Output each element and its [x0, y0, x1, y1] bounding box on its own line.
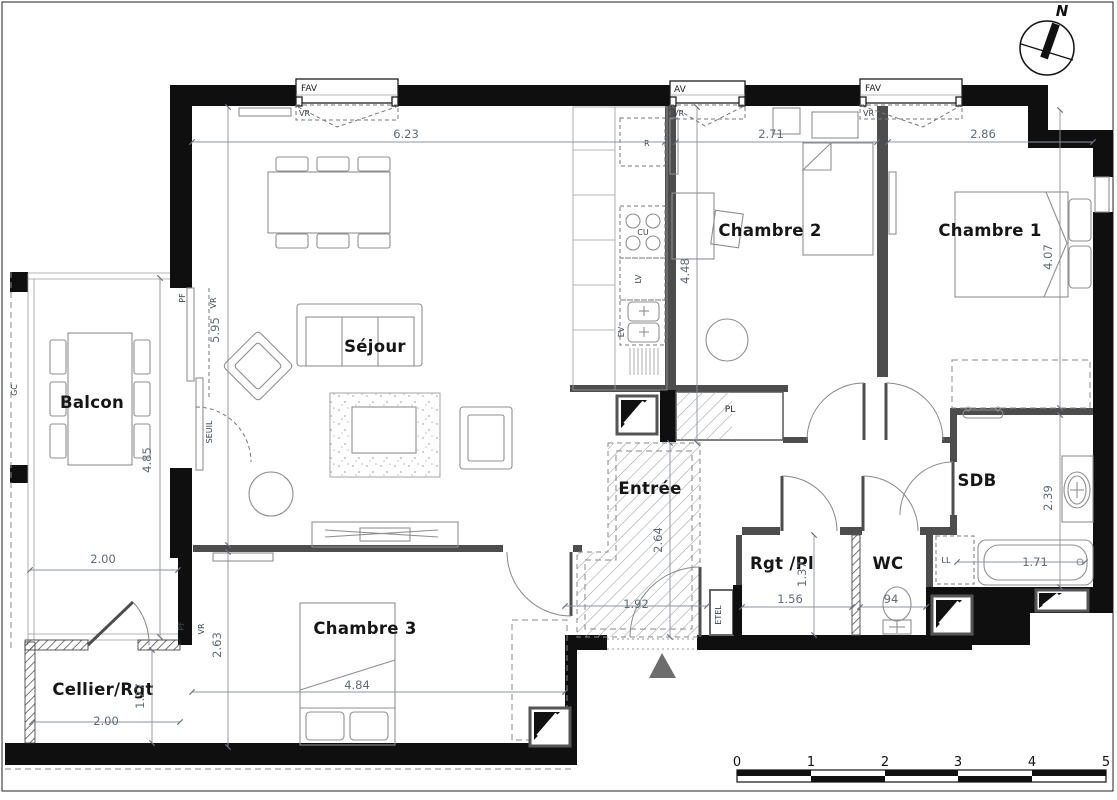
seuil-label: SEUIL: [205, 420, 214, 443]
dim-ch3-w: 4.84: [344, 678, 370, 692]
dim-wc-w: 94: [884, 592, 899, 606]
tv-unit: [312, 522, 458, 547]
armchair: [460, 407, 512, 469]
svg-text:VR: VR: [863, 109, 874, 118]
dim-sejour-w: 6.23: [393, 127, 419, 141]
pillow: [350, 712, 388, 740]
dim-entrance-w: 1.92: [623, 597, 649, 611]
svg-text:LL: LL: [942, 556, 951, 565]
chambre3: Chambre 3: [300, 603, 570, 746]
sejour: Séjour: [213, 157, 512, 561]
svg-text:LV: LV: [634, 274, 643, 284]
shelf: [812, 112, 858, 138]
scale-0: 0: [733, 755, 741, 770]
dim-rgtpl-w: 1.56: [777, 592, 803, 606]
svg-text:CU: CU: [637, 228, 649, 237]
dim-sdb-h: 2.39: [1041, 485, 1055, 511]
svg-text:PF: PF: [178, 293, 187, 303]
svg-text:VR: VR: [209, 297, 218, 308]
wardrobe-dashed: [952, 360, 1090, 408]
gc-label: GC: [10, 384, 19, 396]
balcony-sliding-door: PF VR SEUIL: [178, 288, 251, 470]
dishwasher: LV: [620, 258, 665, 300]
door-chambre2: [807, 383, 864, 440]
svg-text:AV: AV: [674, 85, 687, 95]
room-label-entree: Entrée: [618, 479, 681, 498]
radiator: [889, 172, 896, 234]
svg-text:PF: PF: [177, 621, 186, 631]
closet-pl: PL: [676, 392, 783, 440]
room-label-chambre2: Chambre 2: [718, 221, 821, 240]
coffee-table: [352, 407, 416, 453]
chambre1: Chambre 1: [889, 172, 1091, 408]
dim-ch1-w: 2.86: [970, 127, 996, 141]
duct-shaft-wide: [1036, 590, 1088, 611]
washing-machine: LL: [936, 536, 974, 584]
kitchen: R CU LV EV: [573, 107, 667, 390]
scale-4: 4: [1028, 755, 1036, 770]
desk: [672, 193, 714, 259]
vanity-sink: [1062, 456, 1093, 522]
etel-panel: ETEL: [710, 585, 742, 635]
door-sdb: [900, 462, 953, 515]
bed-double: [955, 192, 1091, 297]
chambre2: Chambre 2: [670, 108, 873, 361]
door-chambre1: [886, 383, 943, 440]
dim-ch3-h: 2.63: [210, 632, 224, 658]
door-chambre3: [507, 552, 571, 616]
dim-balcon-h: 4.85: [140, 447, 154, 473]
window-av: AV VR: [670, 81, 745, 126]
dim-sejour-h: 5.95: [208, 317, 222, 343]
north-label: N: [1056, 2, 1069, 20]
room-label-sdb: SDB: [957, 471, 996, 490]
round-rug: [706, 319, 748, 361]
dim-rgtpl-h: 1.37: [795, 561, 809, 587]
sheet-border: [2, 2, 1113, 791]
svg-text:ETEL: ETEL: [714, 605, 723, 625]
dim-tub-w: 1.71: [1022, 555, 1048, 569]
door-rgtpl: [782, 476, 837, 531]
svg-text:VR: VR: [197, 623, 206, 634]
room-label-balcon: Balcon: [60, 393, 124, 412]
kitchen-sink: EV: [617, 300, 665, 375]
dim-cellier-h: 1.27: [133, 683, 147, 709]
dining-table: [268, 172, 390, 233]
room-label-wc: WC: [873, 554, 904, 573]
radiator: [213, 553, 273, 561]
dim-cellier-w: 2.00: [93, 714, 119, 728]
sofa: [297, 304, 422, 366]
window-fav-2: FAV VR: [860, 79, 962, 127]
drainer: [630, 348, 658, 375]
scale-1: 1: [807, 755, 815, 770]
pl-label: PL: [725, 405, 735, 415]
floor-plan-drawing: Balcon GC FAV VR AV VR FAV: [0, 0, 1117, 800]
room-label-chambre3: Chambre 3: [313, 619, 416, 638]
entrance-arrow: [649, 653, 676, 678]
exterior-walls: [5, 85, 1113, 769]
scale-3: 3: [954, 755, 962, 770]
duct-shaft: [932, 596, 972, 634]
north-needle: [1044, 24, 1056, 58]
floor-plan-sheet: Balcon GC FAV VR AV VR FAV: [0, 0, 1117, 800]
room-label-chambre1: Chambre 1: [938, 221, 1041, 240]
cooktop: CU: [620, 206, 665, 258]
pillow: [1069, 246, 1091, 288]
scale-5: 5: [1102, 755, 1110, 770]
scale-bar: 0 1 2 3 4 5: [733, 755, 1110, 782]
dim-entree-h: 2.64: [651, 527, 665, 553]
room-label-sejour: Séjour: [344, 337, 406, 356]
dim-ch1-h: 4.07: [1041, 244, 1055, 270]
radiator: [239, 108, 291, 116]
svg-text:EV: EV: [617, 326, 626, 337]
scale-2: 2: [881, 755, 889, 770]
door-cellier: [88, 602, 149, 645]
fridge-label: R: [644, 139, 650, 148]
side-table: [249, 472, 293, 516]
duct-shaft: [617, 396, 657, 434]
pillow: [1069, 199, 1091, 241]
armchair-rotated: [223, 331, 294, 402]
compass: N: [1020, 2, 1074, 75]
svg-text:FAV: FAV: [301, 84, 318, 94]
dim-ch2-h: 4.48: [678, 258, 692, 284]
duct-shaft: [530, 708, 570, 746]
dim-ch2-w: 2.71: [758, 127, 784, 141]
doors: [88, 383, 953, 645]
dim-cellier-top: 2.00: [90, 552, 116, 566]
pillow: [306, 712, 344, 740]
svg-text:FAV: FAV: [865, 84, 882, 94]
